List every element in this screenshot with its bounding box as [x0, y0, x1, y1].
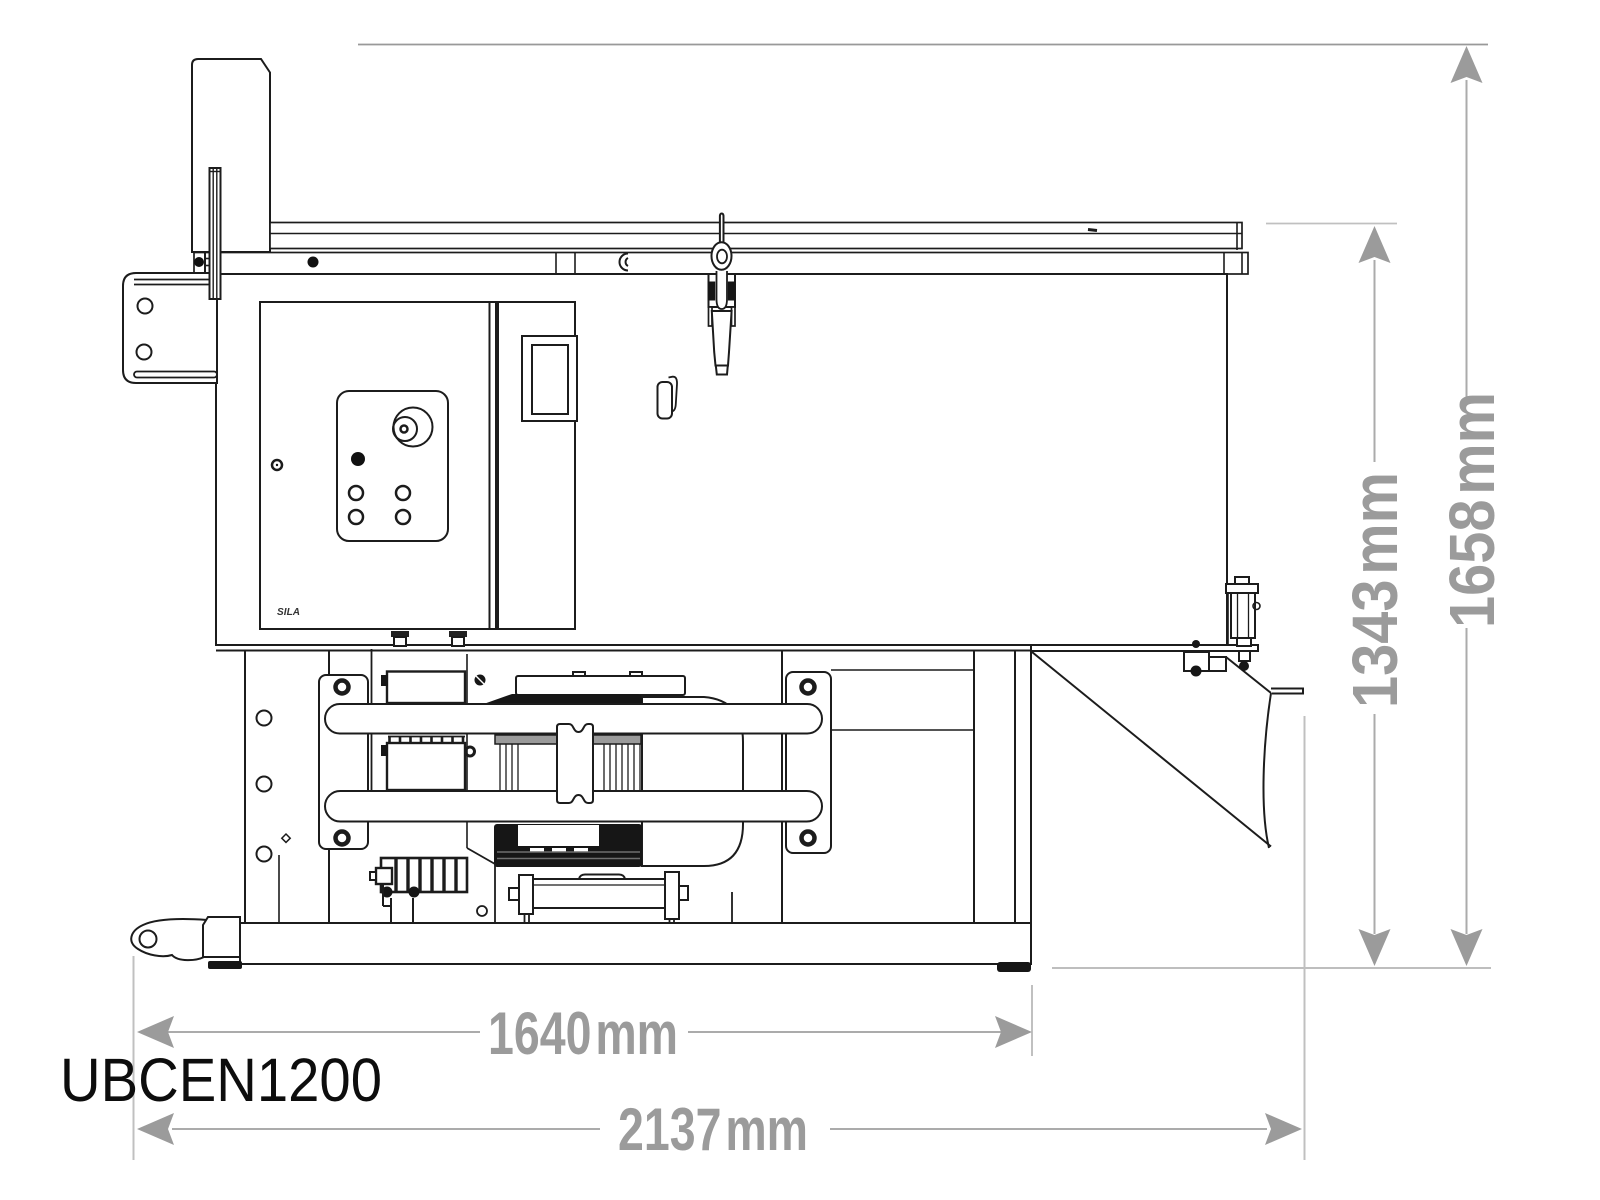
svg-text:UBCEN1200: UBCEN1200: [60, 1046, 382, 1114]
svg-text:2137 mm: 2137 mm: [618, 1096, 808, 1163]
svg-text:SILA: SILA: [277, 607, 300, 618]
svg-text:1343 mm: 1343 mm: [1339, 472, 1411, 708]
svg-text:1658 mm: 1658 mm: [1436, 392, 1508, 628]
svg-text:1640 mm: 1640 mm: [488, 1000, 678, 1067]
